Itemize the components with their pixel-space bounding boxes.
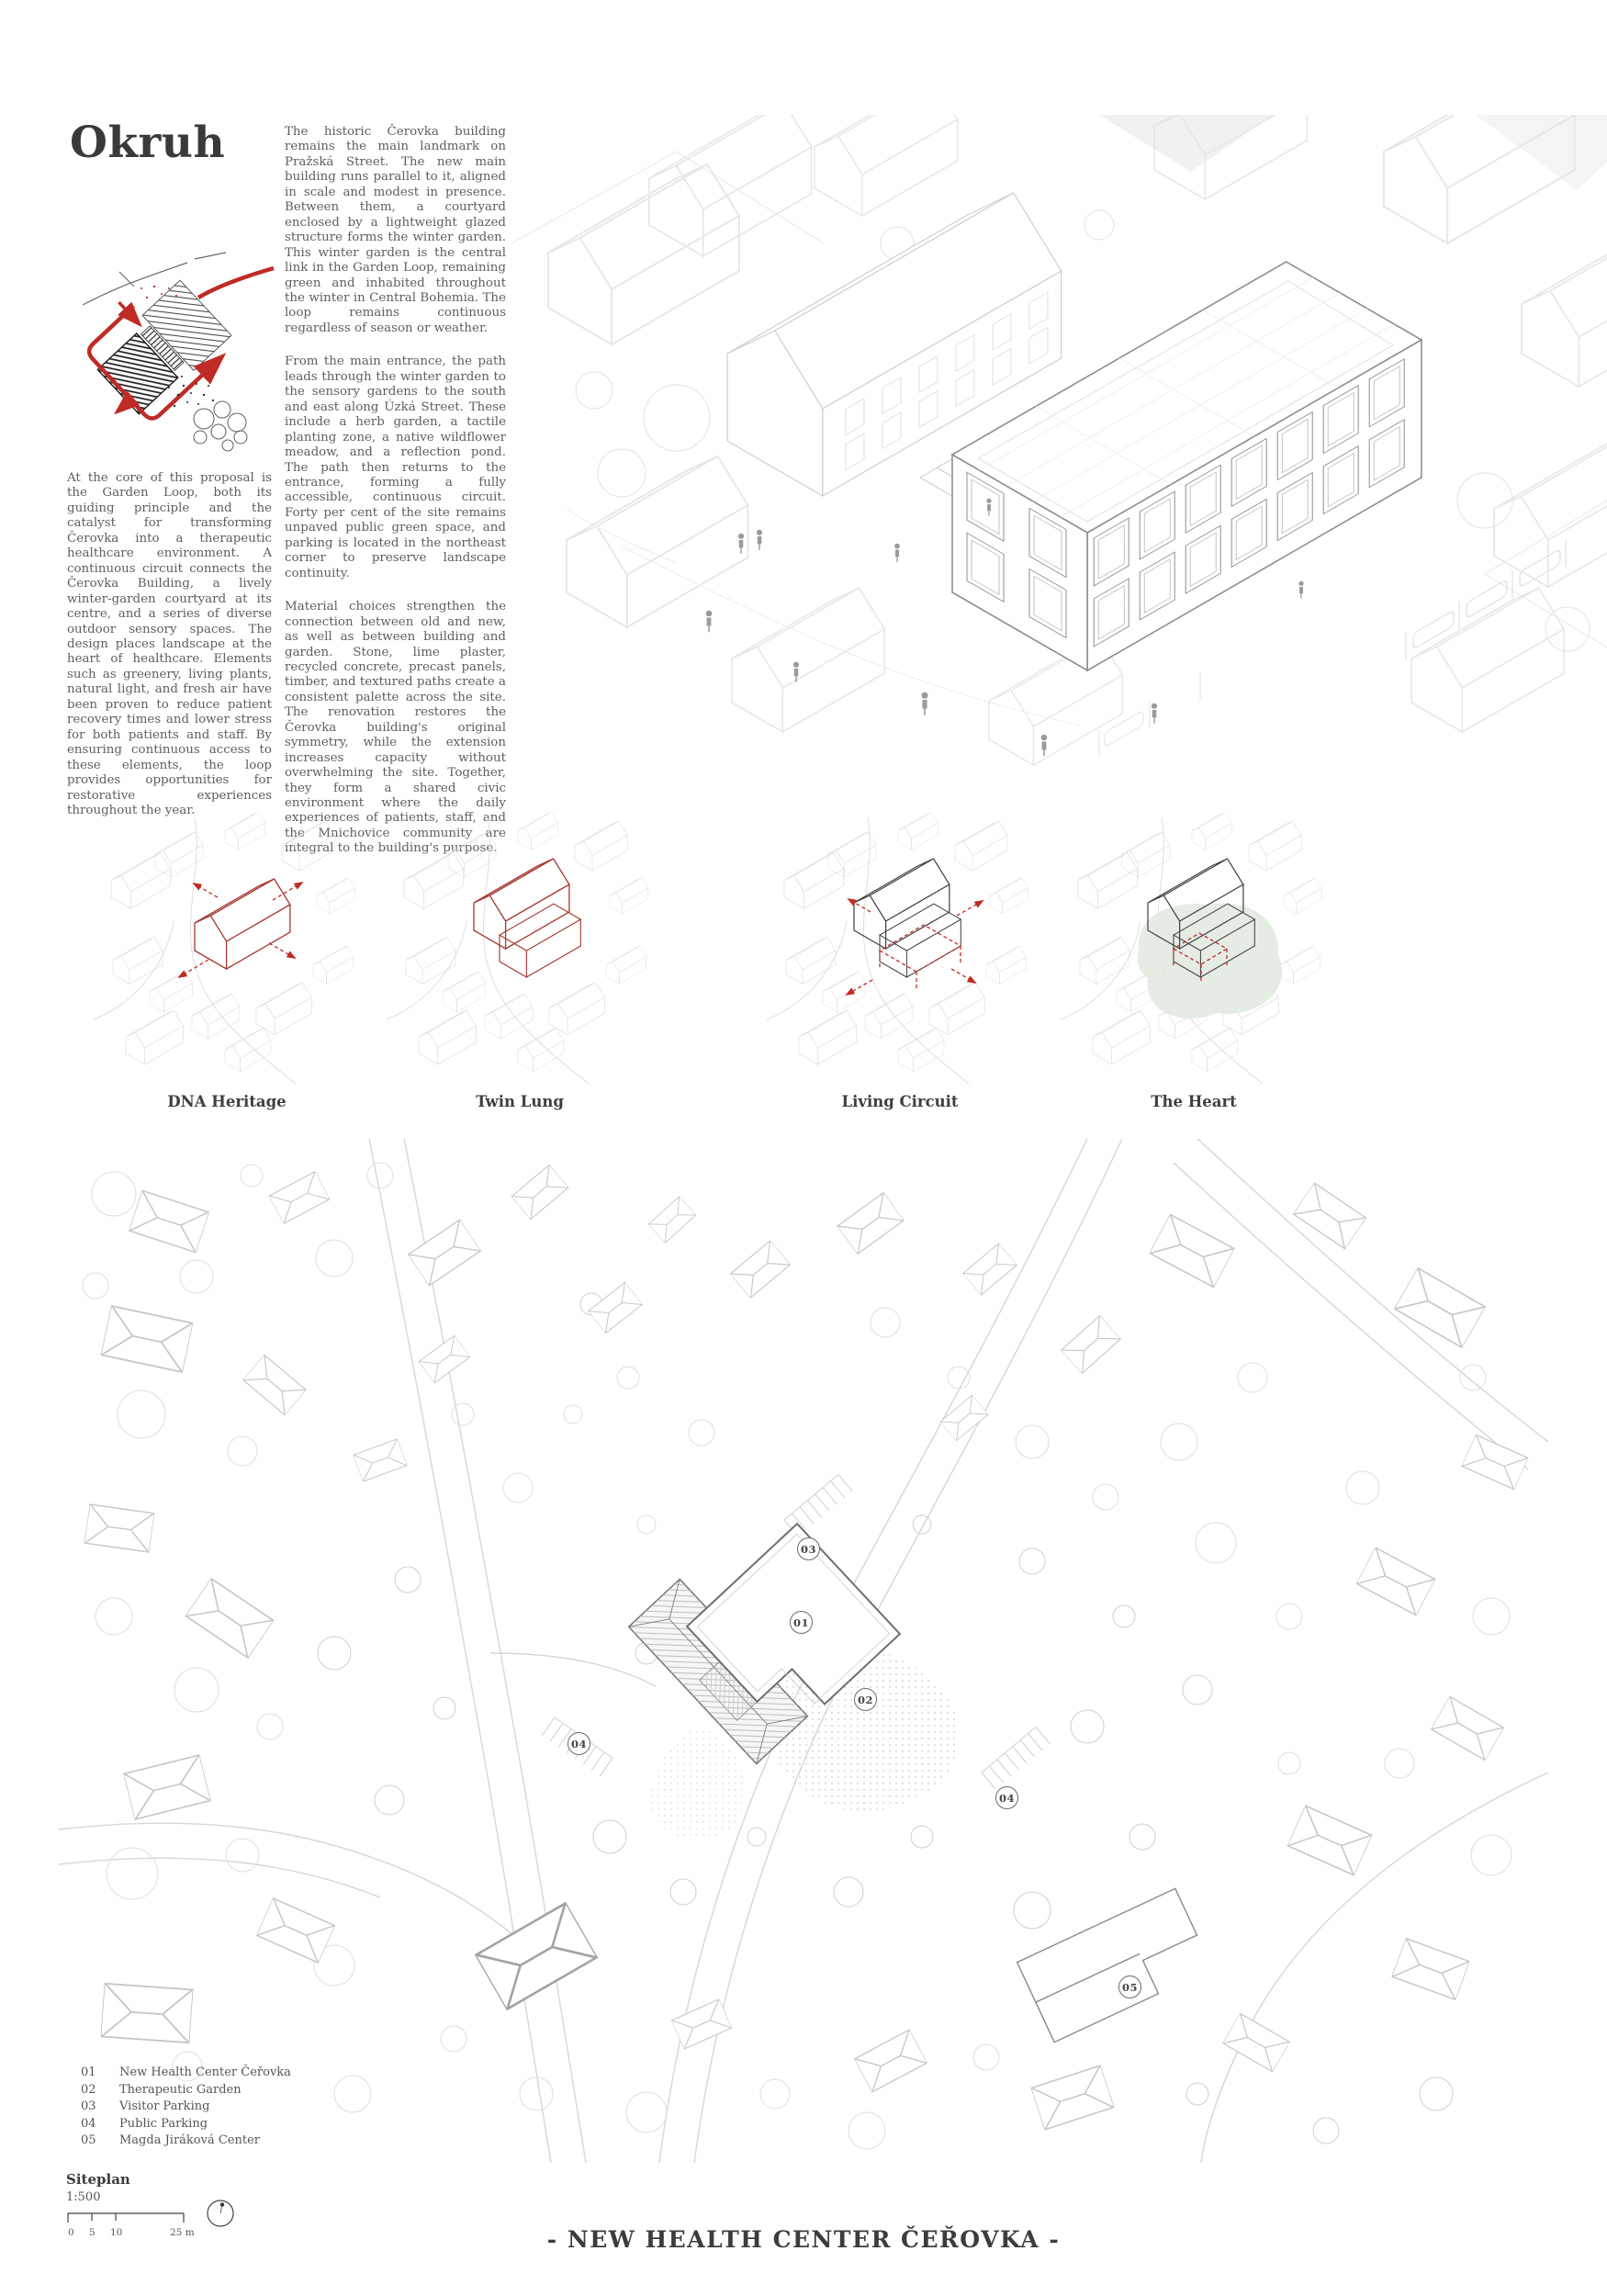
plan-marker-01: 01 (790, 1611, 813, 1634)
garden-green-blob (1138, 904, 1282, 1019)
concept-sketch (66, 248, 279, 461)
legend-num: 02 (81, 2082, 119, 2099)
legend-label: New Health Center Čeřovka (119, 2065, 291, 2082)
legend-row: 03 Visitor Parking (81, 2099, 291, 2116)
diagram-label-living-circuit: Living Circuit (762, 1093, 1038, 1110)
legend-num: 05 (81, 2133, 119, 2150)
plan-marker-03: 03 (797, 1537, 820, 1560)
legend-row: 01 New Health Center Čeřovka (81, 2065, 291, 2082)
legend-num: 04 (81, 2116, 119, 2133)
diagram-dna-heritage (89, 813, 365, 1088)
legend-row: 05 Magda Jiráková Center (81, 2133, 291, 2150)
legend-row: 04 Public Parking (81, 2116, 291, 2133)
siteplan-scale: 1:500 (66, 2190, 204, 2204)
diagram-the-heart (1056, 813, 1332, 1088)
plan-marker-04b: 04 (995, 1786, 1018, 1809)
legend-num: 01 (81, 2065, 119, 2082)
siteplan-legend: 01 New Health Center Čeřovka 02 Therapeu… (81, 2065, 291, 2150)
diagram-label-dna-heritage: DNA Heritage (89, 1093, 365, 1110)
plan-marker-04a: 04 (568, 1732, 590, 1755)
diagram-living-circuit (762, 813, 1038, 1088)
footer-title: - NEW HEALTH CENTER ČEŘOVKA - (0, 2226, 1607, 2253)
legend-label: Public Parking (119, 2116, 208, 2133)
hero-axonometric-drawing (511, 115, 1607, 767)
magda-jirakova-center-footprint (1017, 1888, 1213, 2042)
page-title: Okruh (70, 118, 225, 168)
presentation-board: Okruh At the core of this propo (0, 0, 1607, 2296)
plan-marker-05: 05 (1118, 1975, 1141, 1998)
legend-row: 02 Therapeutic Garden (81, 2082, 291, 2099)
description-column: The historic Čerovka building remains th… (285, 125, 506, 875)
paragraph-2: From the main entrance, the path leads t… (285, 355, 506, 581)
legend-label: Magda Jiráková Center (119, 2133, 260, 2150)
siteplan-drawing (59, 1139, 1548, 2163)
paragraph-1: The historic Čerovka building remains th… (285, 125, 506, 336)
legend-label: Visitor Parking (119, 2099, 209, 2116)
diagram-label-the-heart: The Heart (1056, 1093, 1332, 1110)
legend-label: Therapeutic Garden (119, 2082, 242, 2099)
diagram-twin-lung (382, 813, 657, 1088)
legend-num: 03 (81, 2099, 119, 2116)
diagram-label-twin-lung: Twin Lung (382, 1093, 657, 1110)
intro-paragraph: At the core of this proposal is the Gard… (67, 471, 272, 818)
siteplan-title: Siteplan (66, 2171, 204, 2188)
plan-marker-02: 02 (854, 1688, 877, 1711)
